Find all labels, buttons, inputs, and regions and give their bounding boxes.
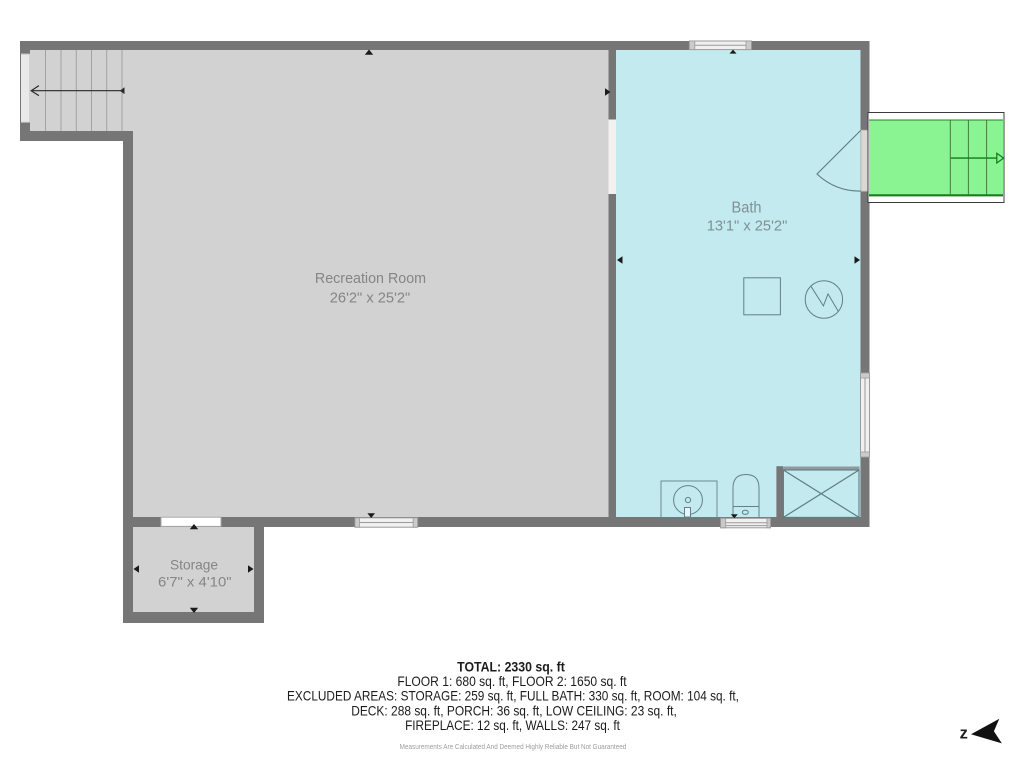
- svg-text:Measurements Are Calculated An: Measurements Are Calculated And Deemed H…: [400, 742, 627, 751]
- svg-text:FIREPLACE: 12 sq. ft, WALLS: 2: FIREPLACE: 12 sq. ft, WALLS: 247 sq. ft: [405, 717, 620, 733]
- svg-text:6'7" x 4'10": 6'7" x 4'10": [158, 574, 232, 590]
- svg-text:13'1" x 25'2": 13'1" x 25'2": [707, 218, 788, 235]
- svg-text:26'2" x 25'2": 26'2" x 25'2": [330, 289, 411, 306]
- svg-text:Bath: Bath: [732, 200, 762, 217]
- svg-text:Recreation Room: Recreation Room: [315, 270, 426, 287]
- svg-text:z: z: [960, 725, 968, 743]
- svg-text:Storage: Storage: [170, 557, 218, 573]
- svg-text:EXCLUDED AREAS: STORAGE: 259 s: EXCLUDED AREAS: STORAGE: 259 sq. ft, FUL…: [287, 688, 739, 704]
